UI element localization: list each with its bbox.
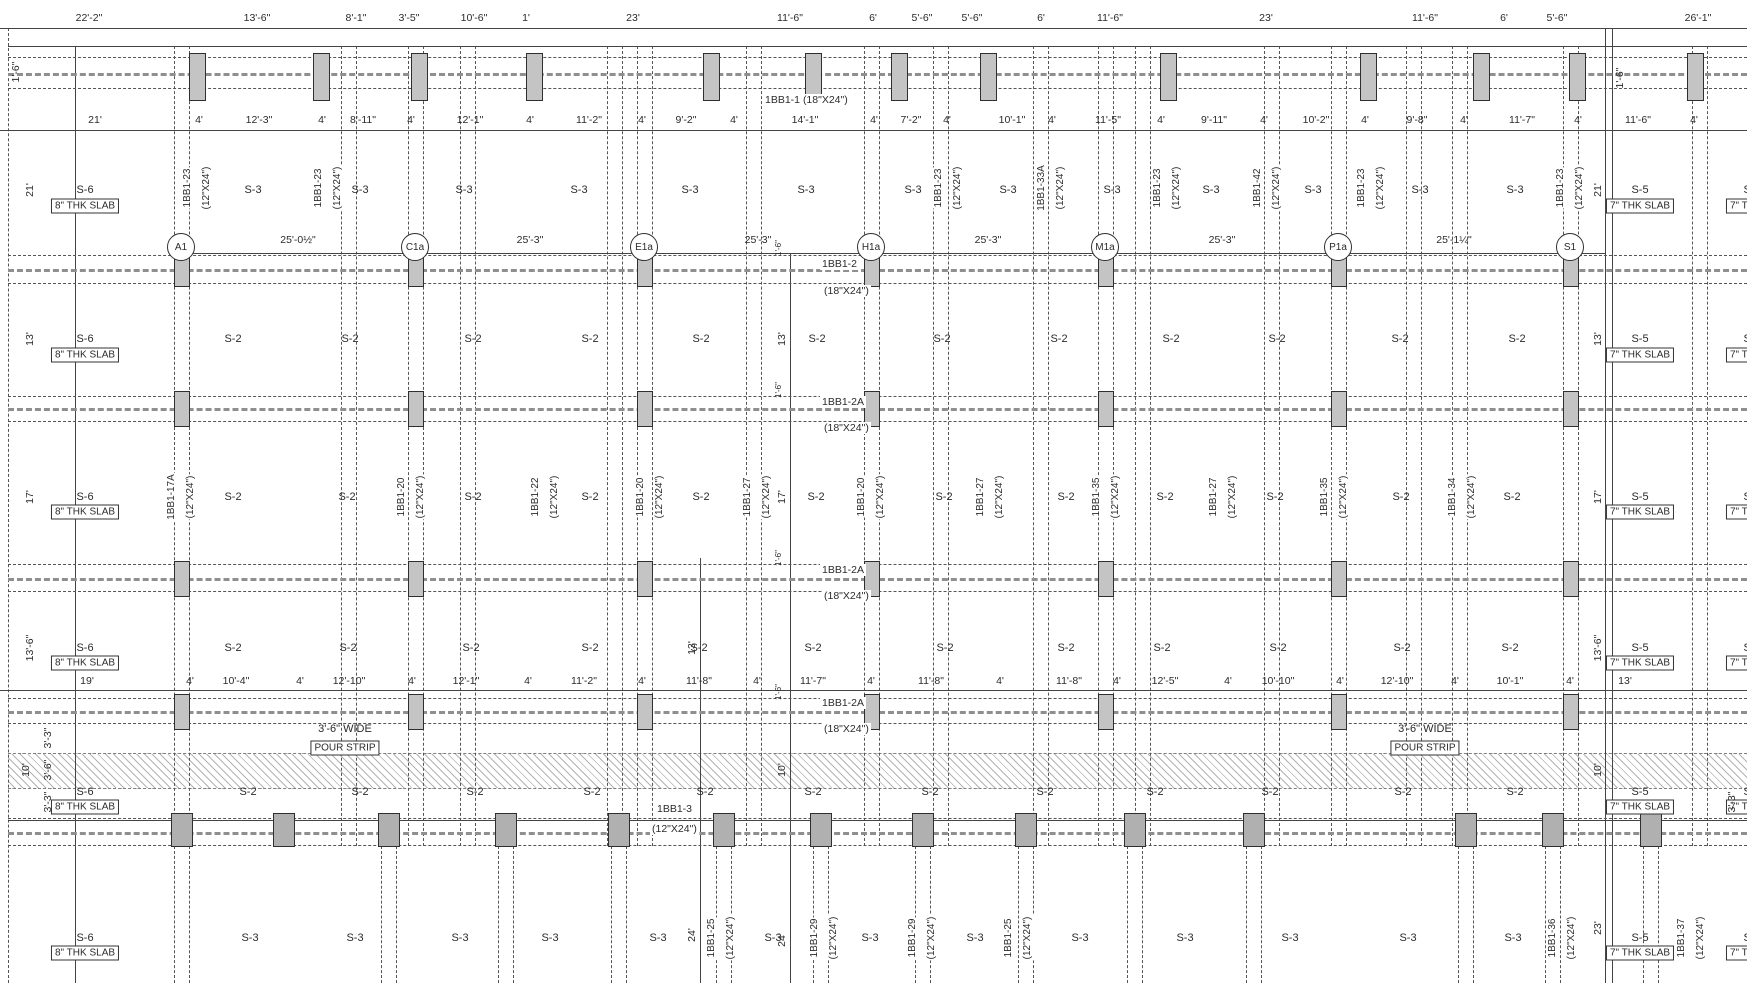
top-dim-row-2: 8'-11" (350, 114, 376, 126)
row6-slabs: S-3 (1399, 932, 1416, 944)
band5-beam-label: 1BB1-2A (820, 697, 866, 709)
grid-line (460, 46, 476, 846)
mid-dims: 17' (776, 490, 788, 504)
row3-beams: 1BB1-20 (635, 477, 647, 518)
row5-slabs: S-2 (351, 786, 368, 798)
row3-beams-size: (12"X24") (1227, 475, 1239, 520)
row1-slabs: S-3 (1506, 184, 1523, 196)
top-dim-row-1: 13'-6" (244, 12, 271, 24)
row2-slabs: S-2 (692, 333, 709, 345)
row1-slabs: S-5 (1743, 184, 1747, 196)
row1-beams: 1BB1-33A (1036, 164, 1048, 212)
row1-beams-size: (12"X24") (1375, 166, 1387, 211)
row1-beams-size: (12"X24") (1574, 166, 1586, 211)
bottom-dim-row: 4' (867, 675, 875, 687)
column-top-band (1360, 53, 1377, 101)
column-interior (1098, 391, 1114, 427)
row6-slabs: S-3 (1071, 932, 1088, 944)
row3-slabs: S-2 (464, 491, 481, 503)
grid-line (933, 46, 949, 846)
top-dim-row-2: 4' (1048, 114, 1056, 126)
column-interior (1331, 561, 1347, 597)
right-edge-dims: 21' (1592, 183, 1604, 197)
bottom-dim-row: 4' (638, 675, 646, 687)
bottom-dim-row: 10'-4" (223, 675, 250, 687)
row1-slabs: S-3 (999, 184, 1016, 196)
top-dim-row-2: 4' (730, 114, 738, 126)
row1-beams-size: (12"X24") (1271, 166, 1283, 211)
framing-plan-canvas: 22'-2"13'-6"8'-1"3'-5"10'-6"1'23'11'-6"6… (0, 0, 1747, 983)
bottom-dim-row: 11'-8" (686, 675, 712, 687)
row3-beams: 1BB1-27 (742, 477, 754, 518)
row6-slabs: S-3 (346, 932, 363, 944)
row6-beams: 1BB1-29 (809, 918, 821, 959)
row5-thk-boxes: 8" THK SLAB (51, 800, 119, 815)
row3-beams: 1BB1-20 (856, 477, 868, 518)
top-dim-row-2: 4' (638, 114, 646, 126)
column-bottom-band (1243, 813, 1265, 847)
row6-slabs: S-3 (1176, 932, 1193, 944)
row2-slabs: S-2 (1508, 333, 1525, 345)
pour-strip-label-line2: POUR STRIP (1390, 741, 1459, 756)
top-dim-row-2: 21' (88, 114, 102, 126)
top-dim-row-1: 6' (1500, 12, 1508, 24)
grid-bubble-A1: A1 (167, 233, 195, 261)
row2-slabs: S-2 (808, 333, 825, 345)
row2-slabs: S-2 (1391, 333, 1408, 345)
row6-beams: 1BB1-25 (1003, 918, 1015, 959)
top-dim-row-1: 6' (869, 12, 877, 24)
column-bottom-band (495, 813, 517, 847)
row6-slabs: S-3 (1281, 932, 1298, 944)
column-interior (637, 561, 653, 597)
row6-beams-size: (12"X24") (1566, 916, 1578, 961)
column-interior (1563, 391, 1579, 427)
top-dim-row-1: 11'-6" (777, 12, 803, 24)
right-edge-dims: 3'-3" (1726, 792, 1738, 813)
row3-slabs: S-2 (1266, 491, 1283, 503)
band5-beam-label: (18"X24") (822, 723, 871, 735)
row1-beams-size: (12"X24") (1055, 166, 1067, 211)
gridline-dims: 25'-1¼" (1436, 234, 1472, 246)
grid-line-bottom (611, 846, 627, 983)
top-dim-row-1: 11'-6" (1412, 12, 1438, 24)
row5-slabs: S-2 (1036, 786, 1053, 798)
row5-slabs: S-6 (76, 786, 93, 798)
row4-slabs: S-2 (804, 642, 821, 654)
top-dim-row-2: 10'-1" (999, 114, 1026, 126)
top-dim-row-2: 11'-5" (1095, 114, 1121, 126)
row5-slabs: S-2 (1394, 786, 1411, 798)
row6-slabs: S-3 (541, 932, 558, 944)
row5-slabs: S-2 (239, 786, 256, 798)
row6-slabs: S-3 (1504, 932, 1521, 944)
bottom-dim-row: 4' (753, 675, 761, 687)
row3-beams-size: (12"X24") (654, 475, 666, 520)
grid-line-bottom (1458, 846, 1474, 983)
left-edge-dims: 13'-6" (24, 635, 36, 662)
row4-slabs: S-5 (1631, 642, 1648, 654)
left-edge-dims: 17' (24, 490, 36, 504)
column-bottom-band (378, 813, 400, 847)
row6-slabs: S-3 (241, 932, 258, 944)
row1-thk-boxes: 7" THK SLAB (1606, 199, 1674, 214)
row1-slabs: S-6 (76, 184, 93, 196)
row3-slabs: S-2 (1503, 491, 1520, 503)
row6-slabs: S-6 (76, 932, 93, 944)
row1-beams-size: (12"X24") (332, 166, 344, 211)
row4-slabs: S-2 (224, 642, 241, 654)
row3-beams: 1BB1-35 (1091, 477, 1103, 518)
row6-beams: 1BB1-25 (706, 918, 718, 959)
bottom-dim-row: 10'-1" (1497, 675, 1524, 687)
row1-slabs: S-3 (570, 184, 587, 196)
top-dim-row-2: 4' (526, 114, 534, 126)
beam-offset-dims: 1'-6" (773, 240, 785, 256)
top-dim-row-2: 4' (870, 114, 878, 126)
row2-thk-boxes: 7" THK SLAB (1606, 348, 1674, 363)
grid-bubble-C1a: C1a (401, 233, 429, 261)
bottom-dim-row: 19' (80, 675, 94, 687)
row3-slabs: S-2 (935, 491, 952, 503)
row3-thk-boxes: 8" THK SLAB (51, 505, 119, 520)
column-bottom-band (608, 813, 630, 847)
grid-line (1452, 46, 1468, 846)
left-edge-dims: 3'-3" (42, 728, 54, 749)
column-bottom-band (912, 813, 934, 847)
top-dim-row-1: 3'-5" (399, 12, 420, 24)
row1-slabs: S-3 (244, 184, 261, 196)
vertical-line (790, 253, 791, 983)
row1-slabs: S-3 (1304, 184, 1321, 196)
grid-bubble-P1a: P1a (1324, 233, 1352, 261)
column-interior (1563, 561, 1579, 597)
bottom-dim-row: 4' (1336, 675, 1344, 687)
horizontal-line (175, 253, 1605, 254)
column-bottom-band (1640, 813, 1662, 847)
bottom-dim-row: 4' (408, 675, 416, 687)
grid-bubble-H1a: H1a (857, 233, 885, 261)
row5-slabs: S-2 (583, 786, 600, 798)
bottom-dim-row: 4' (1451, 675, 1459, 687)
row4-slabs: S-5 (1743, 642, 1747, 654)
top-dim-row-2: 11'-2" (576, 114, 602, 126)
top-dim-row-1: 10'-6" (461, 12, 488, 24)
grid-line-bottom (1127, 846, 1143, 983)
mid-dims: 13' (686, 641, 698, 655)
row5-thk-boxes: 7" THK SLAB (1606, 800, 1674, 815)
row5-slabs: S-2 (1506, 786, 1523, 798)
row6-beams-size: (12"X24") (1695, 916, 1707, 961)
grid-line-bottom (1643, 846, 1659, 983)
row3-beams: 1BB1-34 (1447, 477, 1459, 518)
row3-beams-size: (12"X24") (1338, 475, 1350, 520)
top-dim-row-2: 11'-6" (1625, 114, 1651, 126)
grid-line-bottom (174, 846, 190, 983)
bottom-dim-row: 11'-8" (918, 675, 944, 687)
top-dim-row-2: 14'-1" (792, 114, 819, 126)
row1-beams: 1BB1-23 (933, 168, 945, 209)
row4-slabs: S-6 (76, 642, 93, 654)
column-interior (408, 391, 424, 427)
grid-line (1692, 46, 1708, 846)
top-dim-row-2: 11'-7" (1509, 114, 1535, 126)
bottom-dim-row: 4' (1566, 675, 1574, 687)
row3-slabs: S-2 (1156, 491, 1173, 503)
row2-thk-boxes: 8" THK SLAB (51, 348, 119, 363)
column-interior (637, 391, 653, 427)
row6-slabs: S-5 (1743, 932, 1747, 944)
pour-strip-label-line1: 3'-6" WIDE (318, 723, 372, 735)
bottom-dim-row: 12'-1" (453, 675, 480, 687)
bottom-dim-row: 11'-7" (800, 675, 826, 687)
row1-beams: 1BB1-23 (1356, 168, 1368, 209)
row3-beams: 1BB1-35 (1319, 477, 1331, 518)
row3-slabs: S-2 (692, 491, 709, 503)
row3-beams-size: (12"X24") (415, 475, 427, 520)
column-interior (1331, 694, 1347, 730)
row6-thk-boxes: 7" THK SLAB (1606, 946, 1674, 961)
column-interior (408, 561, 424, 597)
row2-slabs: S-2 (1268, 333, 1285, 345)
row4-slabs: S-2 (462, 642, 479, 654)
left-edge-dims: 10' (20, 763, 32, 777)
pour-strip-label-line1: 3'-6" WIDE (1398, 723, 1452, 735)
column-top-band (1569, 53, 1586, 101)
grid-line-bottom (716, 846, 732, 983)
row6-beams-size: (12"X24") (1022, 916, 1034, 961)
column-top-band (1687, 53, 1704, 101)
row6-beams-size: (12"X24") (828, 916, 840, 961)
right-edge-dims: 10' (1592, 763, 1604, 777)
column-interior (637, 694, 653, 730)
top-dim-row-1: 5'-6" (962, 12, 983, 24)
row5-slabs: S-2 (804, 786, 821, 798)
grid-line-bottom (1246, 846, 1262, 983)
row6-slabs: S-5 (1631, 932, 1648, 944)
column-bottom-band (713, 813, 735, 847)
column-bottom-band (810, 813, 832, 847)
band3-beam-label: (18"X24") (822, 422, 871, 434)
gridline-dims: 25'-0½" (280, 234, 316, 246)
horizontal-line (0, 28, 1747, 29)
row6-beams: 1BB1-36 (1547, 918, 1559, 959)
row3-thk-boxes: 7" THK SLAB (1606, 505, 1674, 520)
beam-offset-dims: 1'-6" (773, 550, 785, 566)
bottom-dim-row: 11'-2" (571, 675, 597, 687)
vertical-line (700, 558, 701, 983)
top-dim-row-2: 9'-2" (676, 114, 697, 126)
grid-line (746, 46, 762, 846)
bottom-dim-row: 12'-5" (1152, 675, 1179, 687)
bottom-dim-row: 13' (1618, 675, 1632, 687)
bottom-dim-row: 12'-10" (1381, 675, 1414, 687)
beam-offset-dims: 1'-6" (773, 382, 785, 398)
row5-slabs: S-2 (1146, 786, 1163, 798)
column-top-band (980, 53, 997, 101)
row4-thk-boxes: 8" THK SLAB (51, 656, 119, 671)
row6-thk-boxes: 7" THK SLAB (1726, 946, 1747, 961)
row3-beams-size: (12"X24") (185, 475, 197, 520)
right-edge-dims: 23' (1592, 921, 1604, 935)
row3-slabs: S-2 (338, 491, 355, 503)
row3-slabs: S-5 (1743, 491, 1747, 503)
top-dim-row-1: 6' (1037, 12, 1045, 24)
row3-beams-size: (12"X24") (549, 475, 561, 520)
column-top-band (411, 53, 428, 101)
left-edge-dims: 3'-3" (42, 792, 54, 813)
right-edge-dims: 13' (1592, 332, 1604, 346)
row3-beams-size: (12"X24") (1110, 475, 1122, 520)
top-dim-row-2: 4' (943, 114, 951, 126)
top-dim-row-2: 4' (1574, 114, 1582, 126)
row3-beams-size: (12"X24") (1466, 475, 1478, 520)
beam-offset-dims: 1'-6" (773, 684, 785, 700)
row1-slabs: S-3 (1411, 184, 1428, 196)
row2-slabs: S-2 (341, 333, 358, 345)
column-interior (1331, 391, 1347, 427)
top-dim-row-2: 9'-8" (1407, 114, 1428, 126)
row1-thk-boxes: 8" THK SLAB (51, 199, 119, 214)
row3-slabs: S-5 (1631, 491, 1648, 503)
grid-line-bottom (915, 846, 931, 983)
row6-slabs: S-3 (649, 932, 666, 944)
top-dim-row-2: 9'-11" (1201, 114, 1227, 126)
top-dim-row-2: 12'-3" (246, 114, 273, 126)
grid-line-bottom (813, 846, 829, 983)
row5-slabs: S-2 (1261, 786, 1278, 798)
row1-slabs: S-3 (1103, 184, 1120, 196)
top-dim-row-2: 7'-2" (901, 114, 922, 126)
mid-dims: 10' (776, 763, 788, 777)
row1-slabs: S-5 (1631, 184, 1648, 196)
top-dim-row-1: 5'-6" (1547, 12, 1568, 24)
row3-beams-size: (12"X24") (875, 475, 887, 520)
column-interior (174, 561, 190, 597)
top-dim-row-1: 26'-1" (1685, 12, 1712, 24)
row1-beams: 1BB1-42 (1252, 168, 1264, 209)
band4-beam-label: 1BB1-2A (820, 564, 866, 576)
bottom-dim-row: 10'-10" (1262, 675, 1295, 687)
right-edge-dims: 17' (1592, 490, 1604, 504)
bottom-dim-row: 4' (296, 675, 304, 687)
row4-slabs: S-2 (581, 642, 598, 654)
row3-beams-size: (12"X24") (994, 475, 1006, 520)
column-top-band (891, 53, 908, 101)
top-dim-row-1: 23' (626, 12, 640, 24)
row3-beams-size: (12"X24") (761, 475, 773, 520)
top-dim-row-2: 4' (407, 114, 415, 126)
row1-beams: 1BB1-23 (1152, 168, 1164, 209)
row3-slabs: S-2 (1057, 491, 1074, 503)
band-6-top (8, 818, 1747, 819)
row1-beams: 1BB1-23 (1555, 168, 1567, 209)
row6-slabs: S-3 (966, 932, 983, 944)
grid-line-bottom (381, 846, 397, 983)
horizontal-line (8, 46, 1747, 47)
left-edge-dims: 21' (24, 183, 36, 197)
horizontal-line (0, 690, 1747, 691)
row2-slabs: S-2 (1162, 333, 1179, 345)
pour-strip-label-line2: POUR STRIP (310, 741, 379, 756)
column-bottom-band (1124, 813, 1146, 847)
row6-beams: 1BB1-29 (907, 918, 919, 959)
column-interior (174, 391, 190, 427)
row6-thk-boxes: 8" THK SLAB (51, 946, 119, 961)
row2-slabs: S-2 (581, 333, 598, 345)
row1-slabs: S-3 (904, 184, 921, 196)
band6-beam-label: 1BB1-3 (655, 803, 694, 815)
horizontal-line (8, 820, 1747, 821)
row2-slabs: S-2 (1050, 333, 1067, 345)
band2-beam-label: 1BB1-2 (820, 258, 859, 270)
band3-beam-label: 1BB1-2A (820, 396, 866, 408)
band4-beam-label: (18"X24") (822, 590, 871, 602)
row3-slabs: S-2 (1392, 491, 1409, 503)
top-dim-row-2: 4' (195, 114, 203, 126)
row1-slabs: S-3 (351, 184, 368, 196)
row2-slabs: S-5 (1743, 333, 1747, 345)
column-top-band (189, 53, 206, 101)
row3-beams: 1BB1-27 (1208, 477, 1220, 518)
row2-thk-boxes: 7" THK SLAB (1726, 348, 1747, 363)
row3-beams: 1BB1-22 (530, 477, 542, 518)
bottom-dim-row: 4' (1113, 675, 1121, 687)
row1-slabs: S-3 (455, 184, 472, 196)
top-dim-row-2: 12'-1" (457, 114, 484, 126)
grid-line (607, 46, 623, 846)
row1-beams-size: (12"X24") (201, 166, 213, 211)
mid-dims: 24' (776, 933, 788, 947)
top-dim-row-1: 5'-6" (912, 12, 933, 24)
row2-slabs: S-6 (76, 333, 93, 345)
row3-beams: 1BB1-27 (975, 477, 987, 518)
band-6-bottom (8, 845, 1747, 846)
row2-slabs: S-2 (933, 333, 950, 345)
row2-slabs: S-5 (1631, 333, 1648, 345)
row4-slabs: S-2 (936, 642, 953, 654)
row1-slabs: S-3 (1202, 184, 1219, 196)
column-bottom-band (171, 813, 193, 847)
column-bottom-band (1015, 813, 1037, 847)
band2-beam-label: (18"X24") (822, 285, 871, 297)
column-bottom-band (1455, 813, 1477, 847)
row1-beams-size: (12"X24") (952, 166, 964, 211)
top-dim-row-2: 4' (1361, 114, 1369, 126)
row5-slabs: S-5 (1631, 786, 1648, 798)
row3-slabs: S-2 (807, 491, 824, 503)
column-top-band (1473, 53, 1490, 101)
row1-slabs: S-3 (797, 184, 814, 196)
row6-beams-size: (12"X24") (725, 916, 737, 961)
grid-line (1135, 46, 1151, 846)
bottom-dim-row: 4' (524, 675, 532, 687)
left-edge-dims: 3'-6" (42, 760, 54, 781)
band-6-centerline (8, 832, 1747, 835)
top-dim-row-1: 11'-6" (1097, 12, 1123, 24)
top-dim-row-1: 1' (522, 12, 530, 24)
row3-beams: 1BB1-17A (166, 473, 178, 521)
row3-thk-boxes: 7" THK SLAB (1726, 505, 1747, 520)
gridline-dims: 25'-3" (975, 234, 1002, 246)
column-top-band (703, 53, 720, 101)
band1-beam-label: 1BB1-1 (18"X24") (763, 94, 850, 106)
column-interior (408, 694, 424, 730)
row1-slabs: S-3 (681, 184, 698, 196)
horizontal-line (0, 130, 1747, 131)
row1-thk-boxes: 7" THK SLAB (1726, 199, 1747, 214)
column-bottom-band (1542, 813, 1564, 847)
